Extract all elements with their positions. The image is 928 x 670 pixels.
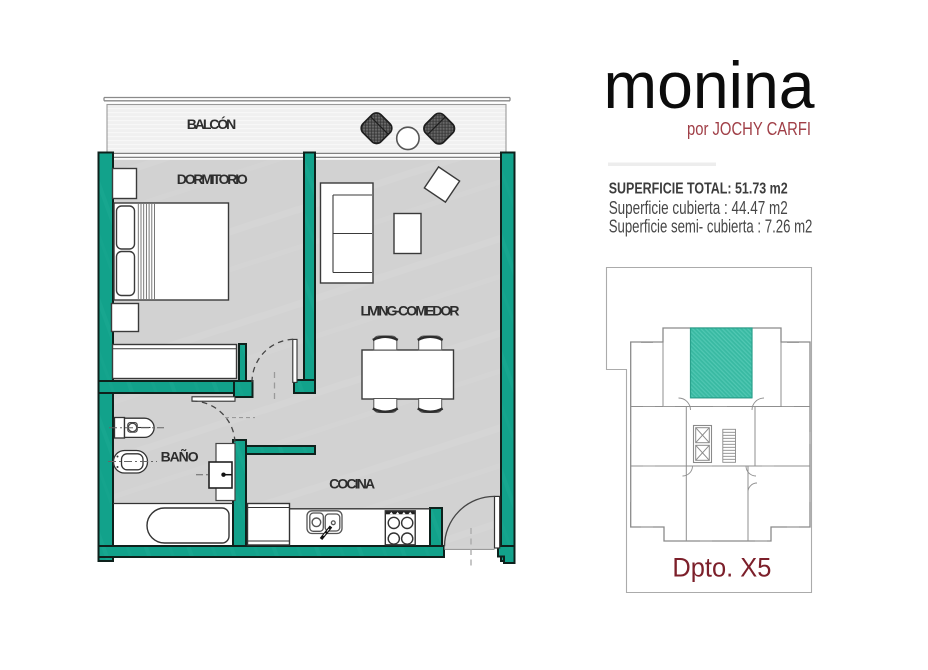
svg-text:LIVING-COMEDOR: LIVING-COMEDOR <box>361 303 460 319</box>
svg-text:Superficie semi- cubierta : 7.: Superficie semi- cubierta : 7.26 m2 <box>609 217 813 237</box>
svg-text:SUPERFICIE TOTAL: 51.73 m2: SUPERFICIE TOTAL: 51.73 m2 <box>609 181 788 198</box>
svg-text:BALCÓN: BALCÓN <box>187 115 237 132</box>
svg-text:DORMITORIO: DORMITORIO <box>177 171 248 187</box>
svg-text:por JOCHY CARFI: por JOCHY CARFI <box>687 118 811 139</box>
svg-text:COCINA: COCINA <box>329 476 375 492</box>
svg-text:monina: monina <box>604 48 815 122</box>
svg-text:BAÑO: BAÑO <box>161 447 199 464</box>
svg-text:Dpto. X5: Dpto. X5 <box>672 552 771 582</box>
svg-text:Superficie cubierta : 44.47 m2: Superficie cubierta : 44.47 m2 <box>609 198 788 218</box>
